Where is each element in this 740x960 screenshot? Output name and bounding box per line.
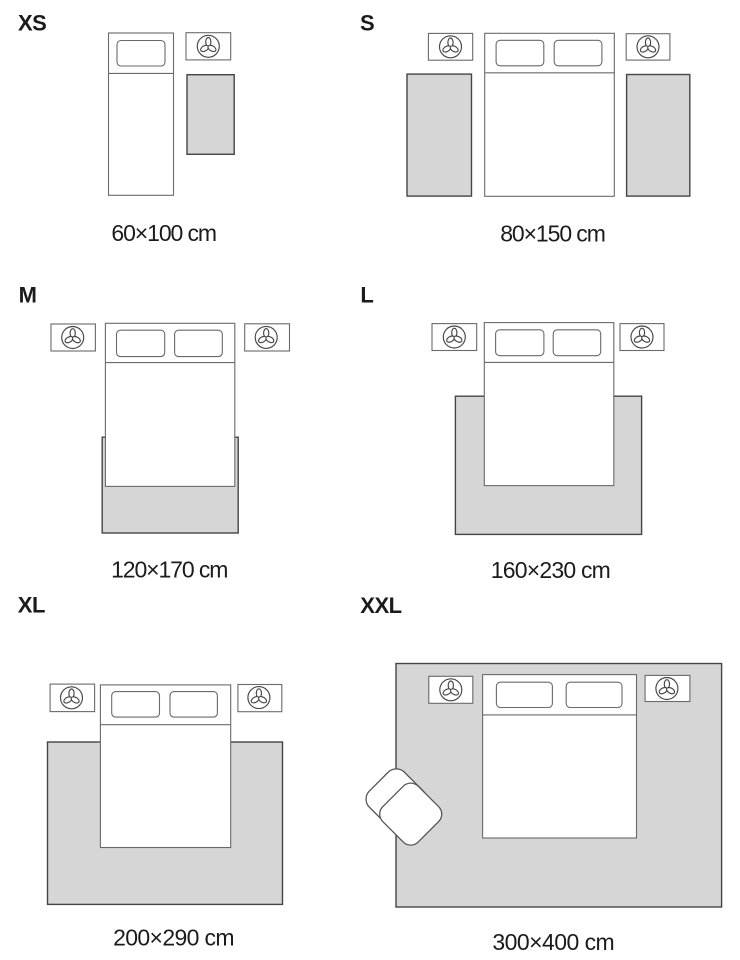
svg-text:XXL: XXL bbox=[360, 593, 401, 618]
svg-text:160×230 cm: 160×230 cm bbox=[491, 557, 610, 583]
svg-text:120×170 cm: 120×170 cm bbox=[111, 557, 227, 583]
svg-text:200×290 cm: 200×290 cm bbox=[113, 925, 234, 951]
svg-text:80×150 cm: 80×150 cm bbox=[500, 221, 605, 247]
svg-text:L: L bbox=[360, 283, 373, 308]
svg-text:S: S bbox=[360, 11, 374, 36]
svg-text:60×100 cm: 60×100 cm bbox=[111, 220, 216, 246]
svg-text:300×400 cm: 300×400 cm bbox=[492, 929, 614, 955]
svg-text:XS: XS bbox=[18, 11, 46, 36]
svg-text:M: M bbox=[19, 283, 37, 308]
svg-text:XL: XL bbox=[18, 593, 45, 618]
